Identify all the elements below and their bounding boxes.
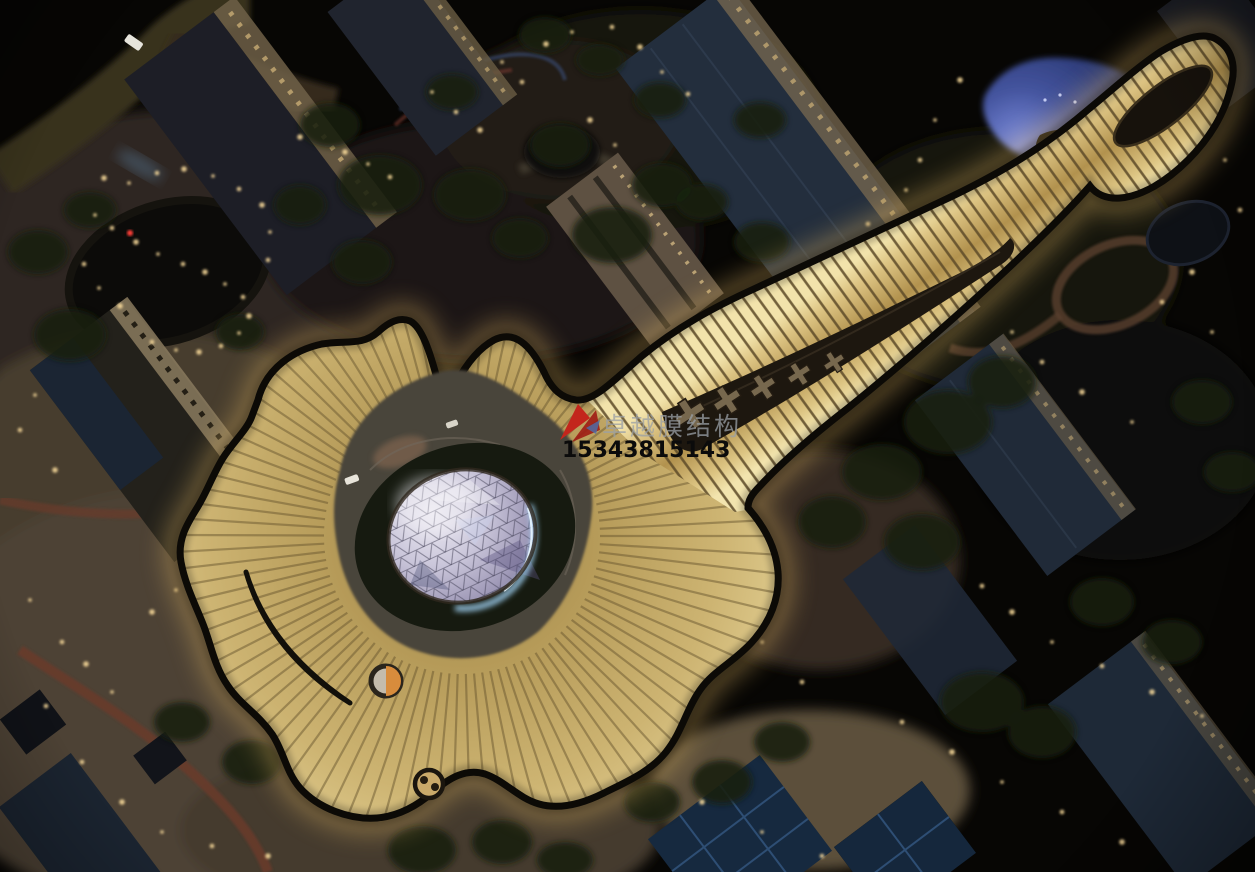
watermark-company-text: 卓越膜结构 [602, 412, 742, 441]
night-aerial-photo: 卓越膜结构 15343815143 [0, 0, 1255, 872]
watermark-phone-text: 15343815143 [562, 438, 730, 463]
